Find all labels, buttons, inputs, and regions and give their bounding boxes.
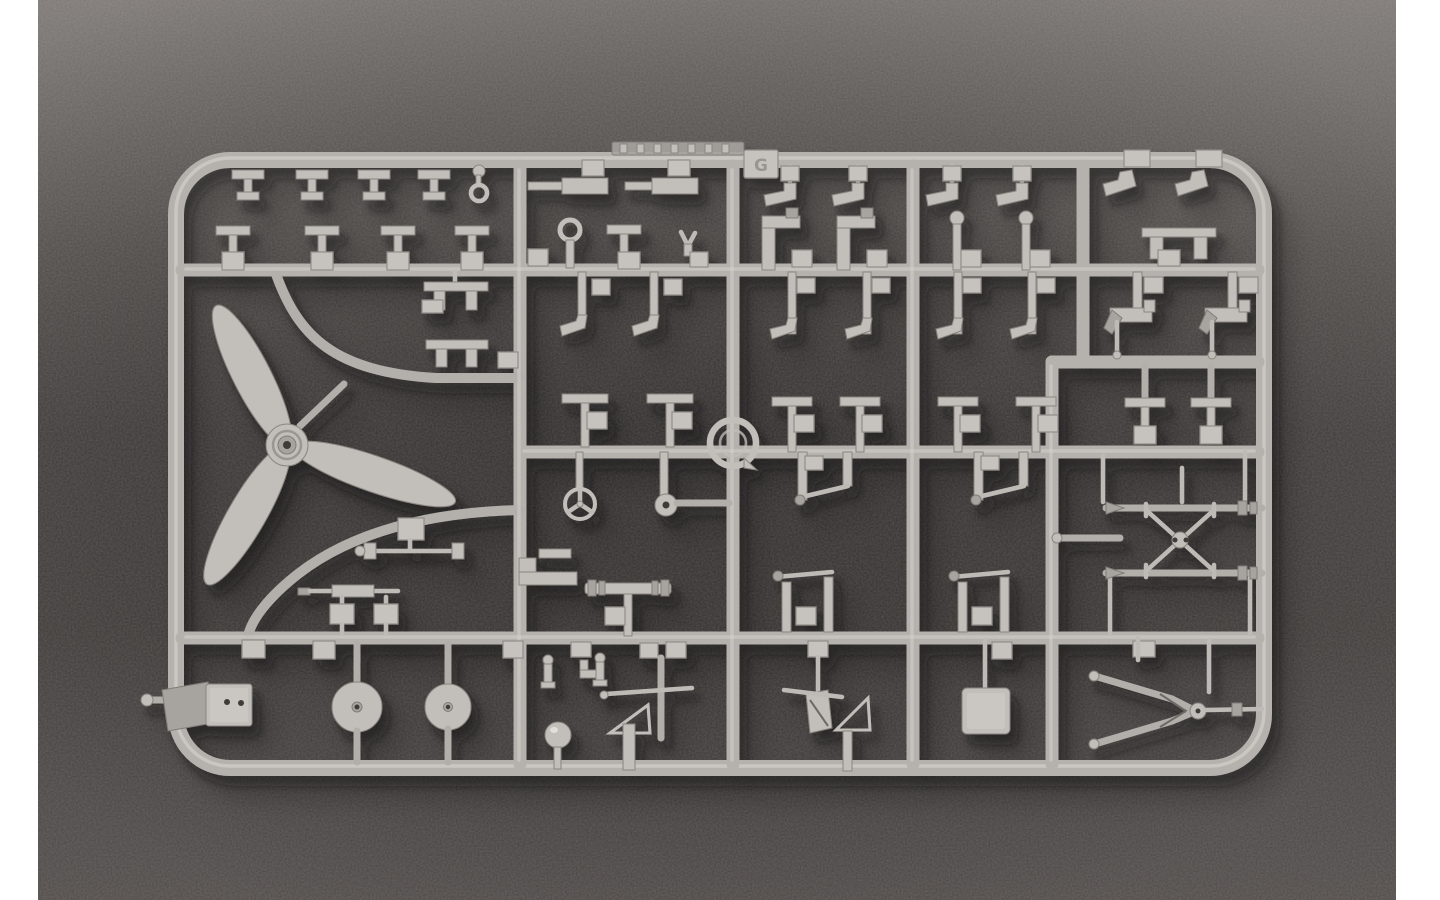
t-stand-tag bbox=[672, 412, 692, 429]
crank-stem bbox=[660, 452, 668, 498]
clamp-arm bbox=[519, 572, 577, 585]
boot-stem bbox=[578, 272, 586, 318]
bench-bar bbox=[426, 340, 488, 349]
strut-fork bbox=[971, 495, 981, 505]
cylinder-collar bbox=[661, 580, 669, 596]
boot-hanger-tag bbox=[1013, 166, 1031, 181]
part-tag bbox=[242, 640, 265, 658]
cylinder-collar bbox=[652, 581, 658, 595]
bench-leg bbox=[466, 291, 477, 310]
strut-post bbox=[1019, 452, 1028, 486]
table-bar bbox=[1142, 228, 1216, 237]
knob-post-ball bbox=[1019, 211, 1033, 225]
strut-fork bbox=[795, 495, 805, 505]
gun-elbow-tag bbox=[1144, 277, 1163, 293]
t-hanger-foot bbox=[301, 192, 323, 200]
seat-hole bbox=[224, 699, 230, 705]
barbell-tag bbox=[398, 518, 424, 540]
t-stand-bar bbox=[1191, 398, 1231, 407]
t-stand-bar bbox=[1016, 397, 1056, 406]
figurine-base bbox=[541, 682, 555, 688]
t-post-stem bbox=[620, 234, 628, 254]
t-post-bar bbox=[381, 226, 415, 235]
crank-hole bbox=[663, 502, 670, 509]
tailfork-hole bbox=[1196, 709, 1201, 714]
t-stand-bar bbox=[1125, 398, 1165, 407]
strut-tag bbox=[981, 456, 999, 470]
gun-elbow-tag bbox=[1239, 277, 1258, 293]
boot-hanger-tag bbox=[849, 166, 867, 181]
gun-elbow-ball bbox=[1208, 351, 1216, 359]
figurine-body bbox=[544, 664, 552, 684]
mast-ball bbox=[600, 691, 608, 699]
strut-post bbox=[958, 582, 967, 632]
t-stand-bar bbox=[938, 397, 978, 406]
ball-part bbox=[545, 722, 571, 748]
t-post-bar bbox=[607, 225, 641, 234]
t-stand-tag bbox=[1134, 426, 1156, 444]
t-post-tag bbox=[387, 252, 409, 270]
t-stand-tag bbox=[1200, 426, 1222, 444]
t-hanger-stem bbox=[308, 179, 316, 193]
table-tag bbox=[1158, 250, 1180, 266]
part-tag bbox=[498, 352, 518, 368]
seat-back bbox=[162, 682, 213, 731]
barbell-cap bbox=[364, 543, 376, 559]
gear-strut-collar bbox=[1238, 566, 1247, 580]
tailfork-collar bbox=[1232, 703, 1242, 716]
bench-leg bbox=[466, 349, 477, 367]
knob-post-tag bbox=[961, 250, 981, 267]
gear-crossball bbox=[1052, 533, 1062, 543]
handwheel-stem bbox=[576, 452, 583, 488]
elbow-knob bbox=[786, 208, 798, 218]
strut-tag bbox=[972, 607, 992, 625]
t-hanger-stem bbox=[430, 179, 438, 193]
x-brace-hole bbox=[1184, 538, 1189, 543]
boot-tag bbox=[664, 279, 682, 295]
strut-post bbox=[824, 577, 833, 632]
strut-tag bbox=[805, 456, 823, 470]
t-post-stem bbox=[394, 235, 402, 253]
boot-hanger-tag bbox=[943, 166, 961, 181]
post-tag bbox=[797, 278, 815, 293]
t-post-stem bbox=[229, 235, 237, 253]
propeller-hub-hole bbox=[283, 441, 291, 449]
gun-tag bbox=[374, 604, 398, 624]
angle-hanger-tag bbox=[1196, 150, 1222, 167]
gun-tag bbox=[330, 604, 354, 624]
wheel-hole bbox=[446, 705, 450, 709]
t-stand-bar bbox=[772, 397, 812, 406]
t-post-bar bbox=[216, 226, 250, 235]
bench-bar bbox=[424, 282, 488, 291]
t-post-tag bbox=[311, 252, 333, 270]
strut-post bbox=[782, 582, 791, 632]
boot-stem bbox=[650, 272, 658, 318]
post-tag bbox=[872, 278, 890, 293]
photo-model-kit-sprue: G bbox=[0, 0, 1440, 900]
fork-tag bbox=[690, 252, 708, 267]
mast-tag bbox=[666, 642, 686, 658]
elbow-tag bbox=[792, 250, 812, 267]
sprue-photo-canvas: G bbox=[0, 0, 1440, 900]
knob-post-stem bbox=[1022, 224, 1030, 270]
t-stand-bar bbox=[562, 394, 608, 403]
plate-tag bbox=[992, 642, 1012, 659]
gear-strut-collar bbox=[1238, 501, 1247, 515]
t-post-tag bbox=[461, 252, 483, 270]
boot-tag bbox=[592, 279, 610, 295]
seat-hole bbox=[238, 700, 244, 706]
gun-elbow-post bbox=[1133, 272, 1142, 310]
clamp-teeth bbox=[539, 549, 571, 558]
t-post-stem bbox=[468, 235, 476, 253]
ball-shine bbox=[550, 727, 558, 733]
t-stand-tag bbox=[960, 415, 980, 432]
barbell-cap bbox=[452, 543, 464, 559]
knob-post-tag bbox=[1030, 250, 1050, 267]
part-tag bbox=[503, 641, 523, 658]
bench-leg bbox=[436, 349, 447, 367]
figurine-base bbox=[593, 680, 607, 686]
plate-highlight bbox=[967, 693, 1005, 729]
gun-elbow-grip bbox=[1239, 300, 1250, 312]
x-brace-hole bbox=[1173, 538, 1178, 543]
angle-hanger-tag bbox=[1124, 150, 1150, 167]
mast-post bbox=[623, 724, 635, 770]
t-post-bar bbox=[455, 226, 489, 235]
part-tag bbox=[313, 641, 335, 659]
cylinder-collar bbox=[588, 580, 596, 596]
t-post-stem bbox=[318, 235, 326, 253]
strut-post bbox=[843, 452, 852, 486]
t-hanger-foot bbox=[363, 192, 385, 200]
gun-body bbox=[562, 178, 608, 194]
gun-elbow-grip bbox=[1144, 300, 1155, 312]
sight-hole bbox=[566, 226, 574, 234]
strut-fork bbox=[949, 571, 959, 581]
sprue-letter: G bbox=[754, 156, 768, 176]
post-tag bbox=[1037, 278, 1055, 293]
t-hanger-stem bbox=[244, 179, 252, 193]
t-hanger-bar bbox=[296, 170, 328, 179]
t-post-bar bbox=[305, 226, 339, 235]
mast-pin bbox=[843, 731, 852, 771]
seat-nub-ball bbox=[141, 694, 153, 706]
sight-stem bbox=[566, 240, 574, 268]
strut-post bbox=[1000, 577, 1009, 632]
elbow-knob bbox=[861, 208, 873, 218]
gun-barrel bbox=[625, 182, 655, 190]
t-stand-bar bbox=[647, 394, 693, 403]
gun-tag bbox=[668, 160, 690, 176]
gear-strut-collar bbox=[1250, 567, 1257, 579]
post-tag bbox=[963, 278, 981, 293]
gun-tag bbox=[582, 160, 604, 176]
t-stand-tag bbox=[587, 412, 607, 429]
knob-post-stem bbox=[953, 224, 961, 270]
wheel-hole bbox=[355, 705, 360, 710]
strut-fork bbox=[773, 571, 783, 581]
t-hanger-foot bbox=[237, 192, 259, 200]
t-hanger-bar bbox=[232, 170, 264, 179]
knob-post-ball bbox=[950, 211, 964, 225]
cylinder-collar bbox=[599, 581, 605, 595]
t-hanger-foot bbox=[423, 192, 445, 200]
boot-hanger-tag bbox=[781, 166, 799, 181]
gun-barrel bbox=[528, 182, 564, 190]
t-hanger-stem bbox=[370, 179, 378, 193]
gun-elbow-ball bbox=[1113, 351, 1121, 359]
t-stand-tag bbox=[862, 415, 882, 432]
bench-tag bbox=[422, 300, 443, 313]
gun-body bbox=[332, 585, 374, 597]
gun-elbow-post bbox=[1228, 272, 1237, 310]
tailfork-ball bbox=[1089, 671, 1099, 681]
elbow-small bbox=[580, 670, 596, 678]
t-stand-bar bbox=[840, 397, 880, 406]
ball-pin bbox=[554, 747, 561, 769]
t-hanger-bar bbox=[418, 170, 450, 179]
t-stand-tag bbox=[794, 415, 814, 432]
strut-tag bbox=[796, 607, 816, 625]
t-post-tag bbox=[222, 252, 244, 270]
gun-body bbox=[652, 178, 698, 194]
mast-tag bbox=[640, 643, 658, 658]
t-hanger-bar bbox=[358, 170, 390, 179]
gear-strut-collar bbox=[1250, 502, 1257, 514]
mast-tag bbox=[808, 641, 828, 657]
t-post-tag bbox=[618, 252, 640, 269]
barbell-ball bbox=[355, 546, 365, 556]
figurine-body bbox=[596, 662, 604, 682]
part-tag bbox=[571, 642, 591, 657]
elbow-tag bbox=[867, 250, 887, 267]
handwheel-hub bbox=[577, 501, 583, 507]
tailfork-ball bbox=[1089, 739, 1099, 749]
t-stand-tag bbox=[1038, 415, 1058, 432]
cylinder-tag bbox=[605, 607, 625, 625]
table-leg bbox=[1194, 237, 1207, 259]
sight-tag bbox=[528, 249, 548, 266]
